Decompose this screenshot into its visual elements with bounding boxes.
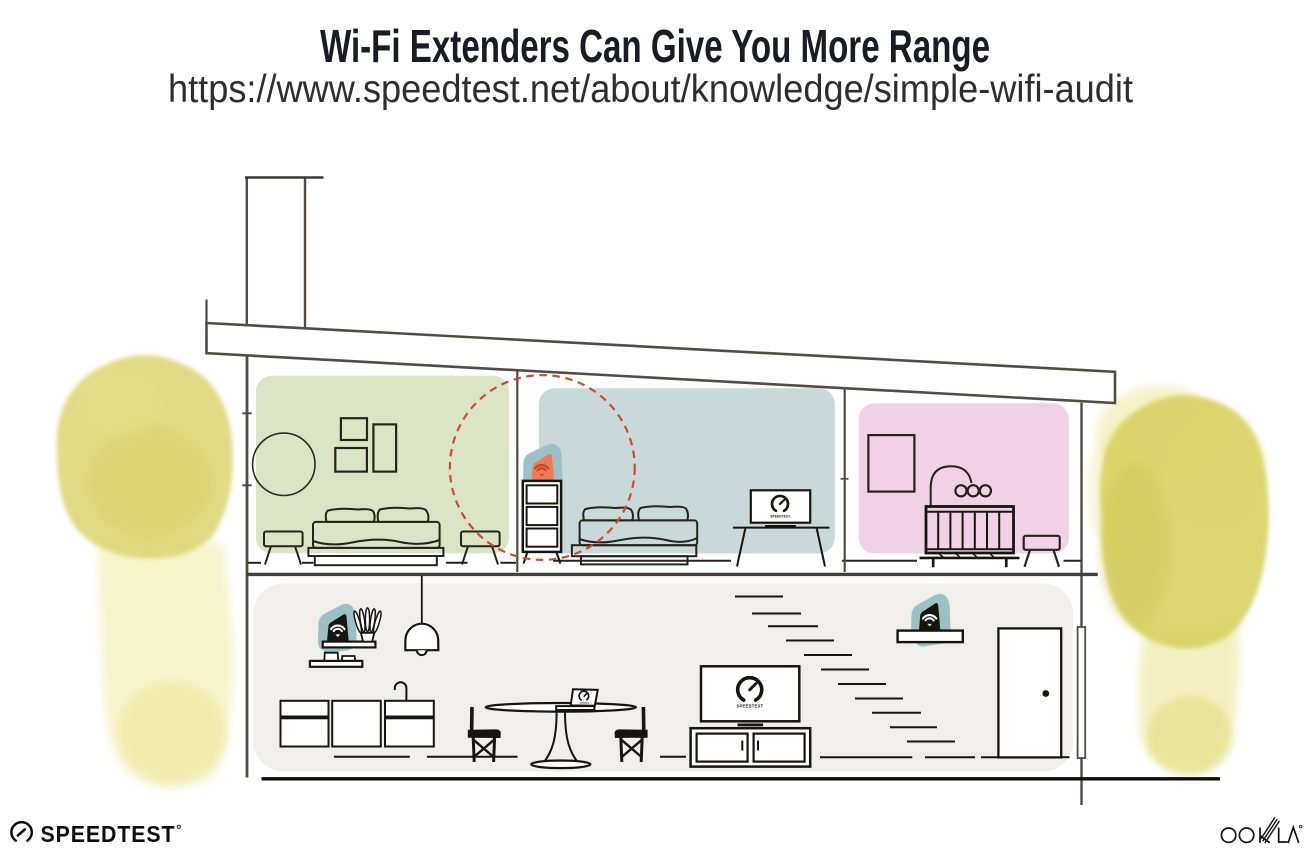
svg-text:SPEEDTEST: SPEEDTEST (737, 704, 764, 709)
svg-text:SPEEDTEST: SPEEDTEST (41, 821, 176, 847)
svg-text:Wi-Fi Extenders Can Give You M: Wi-Fi Extenders Can Give You More Range (320, 20, 990, 72)
svg-text:SPEEDTEST: SPEEDTEST (770, 515, 790, 519)
svg-text:https://www.speedtest.net/abou: https://www.speedtest.net/about/knowledg… (168, 68, 1133, 111)
